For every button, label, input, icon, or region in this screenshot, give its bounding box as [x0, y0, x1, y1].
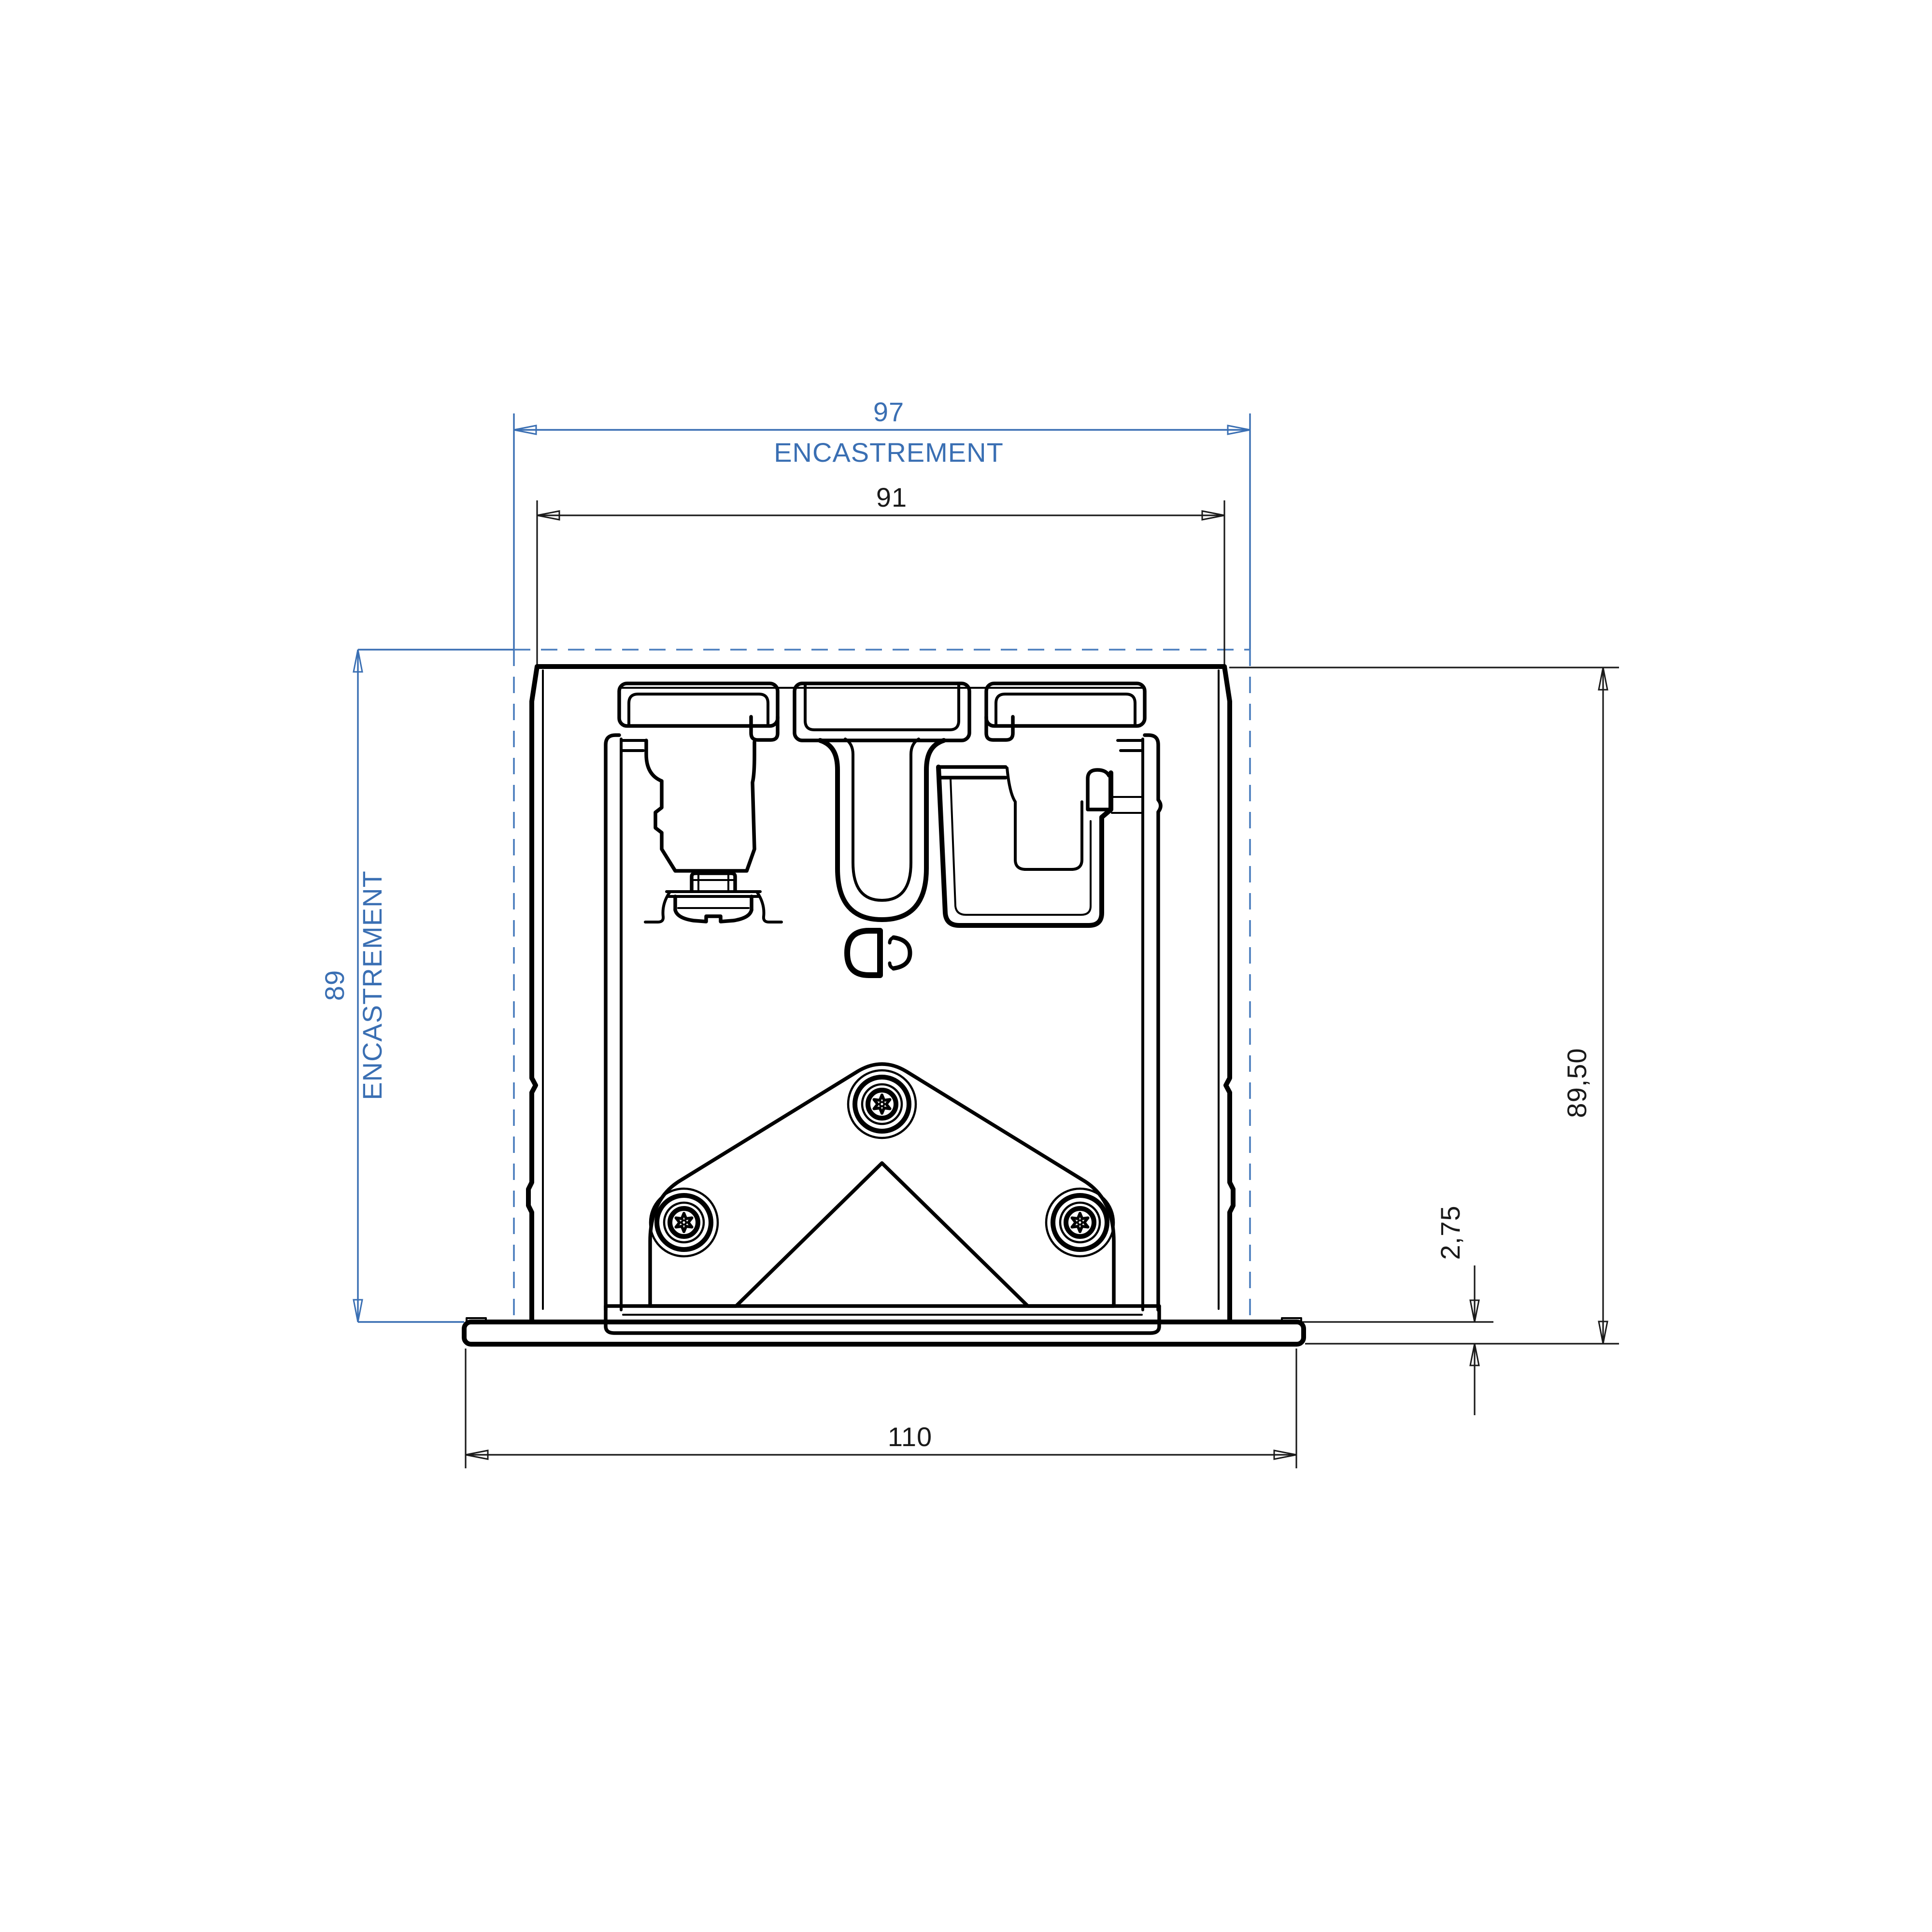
mounting-carrier — [606, 735, 1161, 1333]
dim-97-label: ENCASTREMENT — [774, 437, 1004, 468]
torx-screw-left — [650, 1189, 718, 1256]
torx-screw-right — [1046, 1189, 1114, 1256]
dim-recess-depth: 89 ENCASTREMENT — [319, 650, 514, 1322]
dim-recess-width: 97 ENCASTREMENT — [514, 397, 1250, 468]
dim-89-value: 89 — [319, 970, 350, 1001]
chevron-bracket — [650, 1064, 1114, 1306]
slotted-screw — [645, 873, 781, 922]
dim-97-value: 97 — [873, 397, 904, 427]
keyhole-slot — [847, 931, 910, 975]
dim-91-value: 91 — [876, 482, 907, 512]
dim-flange-thickness: 2,75 — [1300, 1206, 1493, 1416]
dim-110-value: 110 — [888, 1421, 932, 1452]
dim-89-50-value: 89,50 — [1562, 1048, 1592, 1118]
left-prong — [646, 740, 754, 871]
profile-body — [528, 667, 1233, 1322]
technical-drawing-canvas: 97 ENCASTREMENT 91 89 ENCASTREMENT 89,50… — [0, 0, 1932, 1932]
trim-flange — [464, 1318, 1304, 1344]
recess-outline-dashed — [514, 413, 1250, 1322]
drawing-sheet: 97 ENCASTREMENT 91 89 ENCASTREMENT 89,50… — [0, 0, 1932, 1932]
dim-89-label: ENCASTREMENT — [357, 870, 387, 1100]
torx-screw-top — [848, 1070, 916, 1138]
dim-2-75-value: 2,75 — [1435, 1206, 1465, 1260]
center-finger — [820, 739, 944, 920]
castle-profile — [619, 683, 1145, 740]
dim-overall-height: 89,50 — [1229, 668, 1619, 1344]
dim-body-width: 91 — [537, 482, 1224, 666]
dim-flange-width: 110 — [466, 1349, 1296, 1468]
right-bucket — [938, 767, 1143, 925]
